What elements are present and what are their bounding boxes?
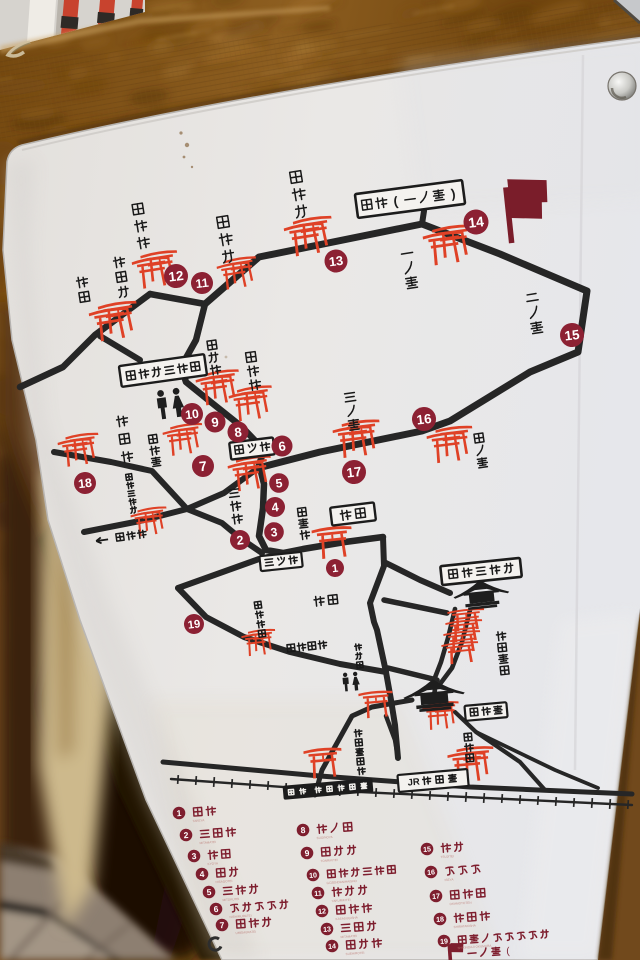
svg-text:ISEYA: ISEYA (444, 877, 454, 882)
svg-text:17: 17 (432, 891, 441, 901)
svg-text:12: 12 (168, 268, 185, 285)
svg-text:19: 19 (440, 936, 449, 946)
svg-text:10: 10 (184, 407, 199, 423)
svg-text:16: 16 (416, 411, 433, 428)
svg-text:4: 4 (199, 869, 205, 879)
svg-text:13: 13 (323, 924, 332, 934)
svg-text:8: 8 (300, 825, 306, 835)
svg-text:3: 3 (191, 851, 197, 861)
svg-text:JR: JR (407, 777, 420, 789)
svg-text:14: 14 (328, 941, 337, 951)
svg-text:5: 5 (206, 887, 212, 897)
svg-text:14: 14 (467, 213, 485, 231)
svg-text:11: 11 (314, 888, 322, 898)
svg-text:15: 15 (423, 844, 432, 854)
svg-text:11: 11 (195, 276, 210, 291)
svg-text:18: 18 (436, 914, 445, 924)
svg-text:16: 16 (427, 867, 436, 877)
svg-text:17: 17 (346, 464, 363, 481)
svg-text:19: 19 (187, 618, 201, 631)
svg-text:13: 13 (328, 253, 344, 270)
svg-text:10: 10 (309, 870, 318, 880)
svg-text:15: 15 (564, 327, 581, 344)
svg-text:1: 1 (176, 808, 182, 818)
svg-text:6: 6 (213, 904, 219, 914)
svg-text:9: 9 (304, 848, 310, 858)
svg-text:12: 12 (318, 906, 327, 916)
svg-text:18: 18 (77, 476, 92, 492)
svg-text:KYOYA: KYOYA (207, 861, 219, 866)
svg-text:2: 2 (183, 830, 189, 840)
svg-text:7: 7 (219, 920, 225, 930)
